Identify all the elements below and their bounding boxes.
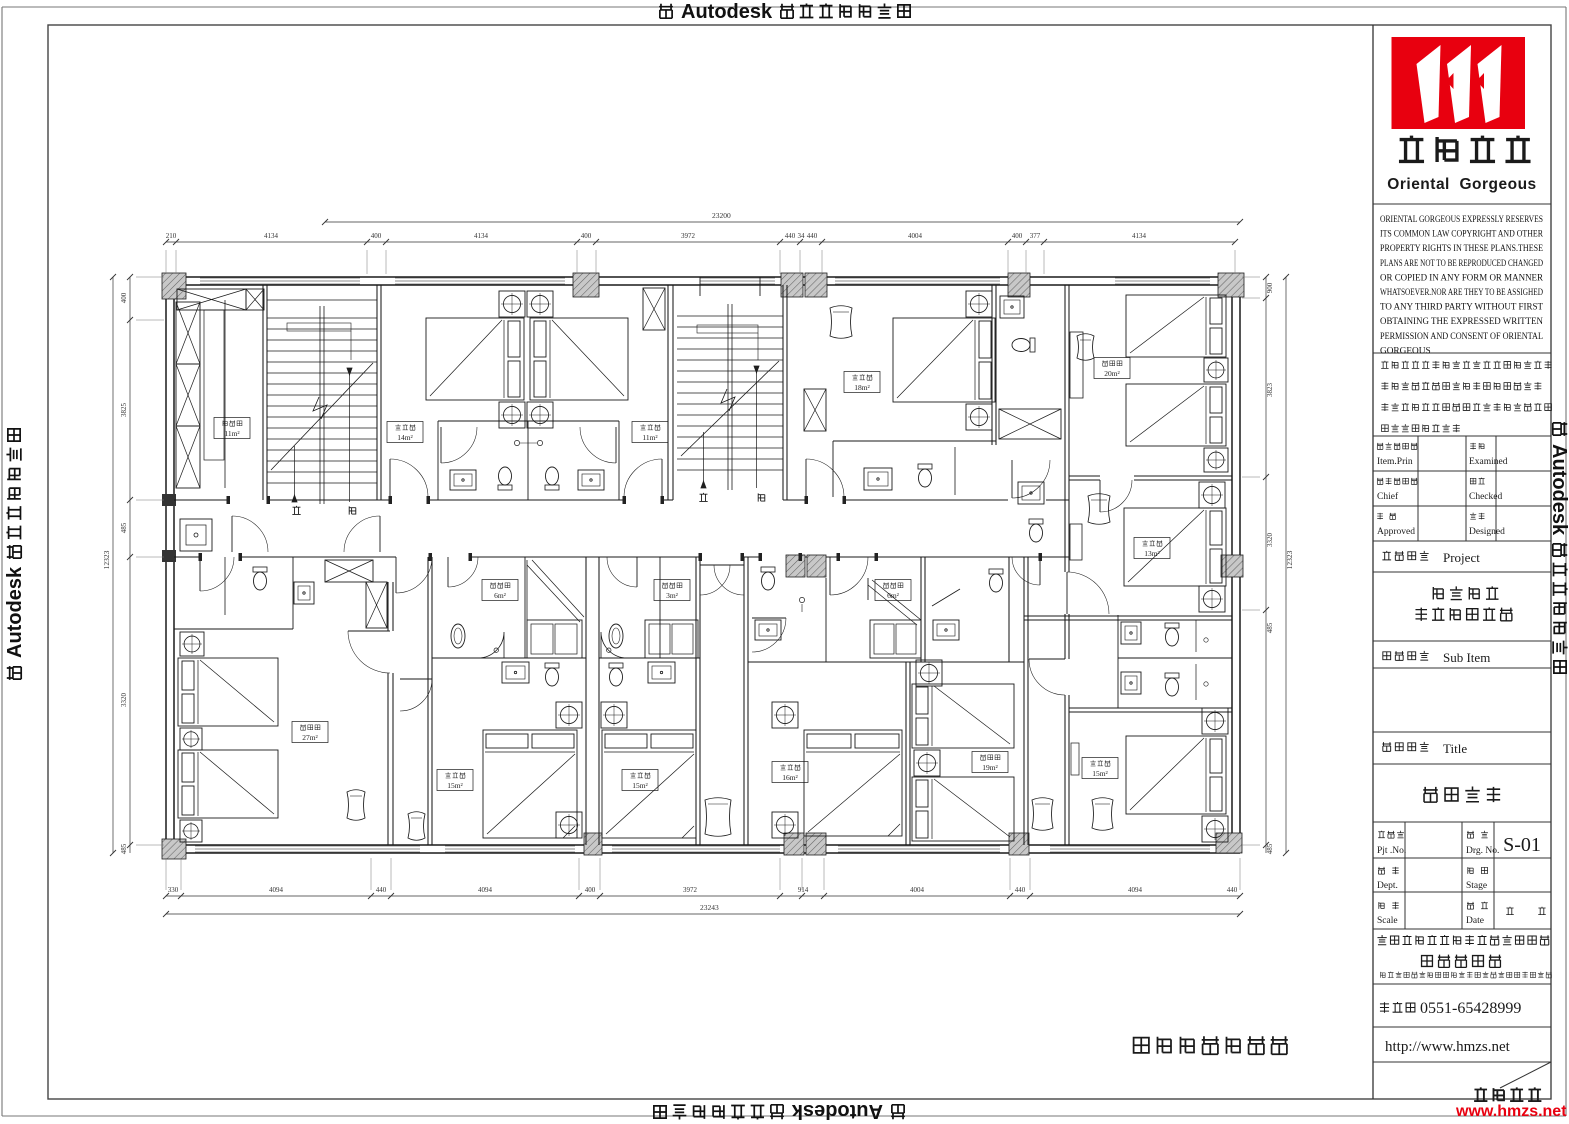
svg-text:14m²: 14m²	[397, 433, 413, 442]
svg-text:485: 485	[120, 843, 128, 854]
svg-text:Oriental Gorgeous: Oriental Gorgeous	[1387, 176, 1536, 193]
svg-text:15m²: 15m²	[447, 781, 463, 790]
svg-text:4134: 4134	[264, 232, 279, 240]
svg-text:440: 440	[376, 886, 387, 894]
svg-text:www.hmzs.net: www.hmzs.net	[1455, 1103, 1567, 1120]
svg-text:http://www.hmzs.net: http://www.hmzs.net	[1385, 1039, 1511, 1055]
svg-text:15m²: 15m²	[1092, 769, 1108, 778]
svg-text:WHATSOEVER.NOR ARE THEY TO BE: WHATSOEVER.NOR ARE THEY TO BE ASSIGHED	[1380, 288, 1543, 298]
svg-text:6m²: 6m²	[494, 591, 507, 600]
svg-text:400: 400	[1012, 232, 1023, 240]
svg-text:3825: 3825	[120, 403, 128, 418]
svg-text:440: 440	[807, 232, 818, 240]
svg-text:PERMISSION AND CONSENT OF ORIE: PERMISSION AND CONSENT OF ORIENTAL	[1380, 332, 1543, 342]
svg-text:3823: 3823	[1266, 383, 1274, 398]
svg-text:ITS COMMON LAW COPYRIGHT AND O: ITS COMMON LAW COPYRIGHT AND OTHER	[1380, 230, 1544, 240]
svg-text:27m²: 27m²	[302, 733, 318, 742]
svg-text:440: 440	[1227, 886, 1238, 894]
svg-text:0551-65428999: 0551-65428999	[1420, 1000, 1521, 1017]
svg-text:3972: 3972	[681, 232, 696, 240]
svg-text:12323: 12323	[102, 550, 111, 569]
svg-text:485: 485	[120, 522, 128, 533]
svg-text:Title: Title	[1443, 741, 1467, 756]
svg-text:11m²: 11m²	[224, 429, 240, 438]
svg-text:TO ANY THIRD PARTY WITHOUT FIR: TO ANY THIRD PARTY WITHOUT FIRST	[1380, 303, 1543, 313]
svg-text:4004: 4004	[910, 886, 925, 894]
svg-text:Autodesk: Autodesk	[681, 1, 773, 23]
svg-text:210: 210	[166, 232, 177, 240]
svg-text:Sub Item: Sub Item	[1443, 650, 1490, 665]
svg-text:Drg. No.: Drg. No.	[1466, 846, 1499, 856]
svg-text:440: 440	[1015, 886, 1026, 894]
svg-text:330: 330	[168, 886, 179, 894]
svg-text:Autodesk: Autodesk	[791, 1100, 883, 1122]
svg-text:Checked: Checked	[1469, 492, 1502, 502]
svg-text:485: 485	[1266, 843, 1274, 854]
svg-text:Item.Prin: Item.Prin	[1377, 457, 1413, 467]
svg-text:Chief: Chief	[1377, 491, 1399, 502]
svg-text:Pjt .No.: Pjt .No.	[1377, 846, 1406, 856]
svg-text:914: 914	[798, 886, 809, 894]
svg-text:6m²: 6m²	[887, 591, 900, 600]
svg-text:4094: 4094	[269, 886, 284, 894]
svg-text:Stage: Stage	[1466, 881, 1487, 891]
svg-text:11m²: 11m²	[642, 433, 658, 442]
svg-text:13m²: 13m²	[1144, 549, 1160, 558]
svg-text:12323: 12323	[1285, 550, 1294, 569]
svg-text:S-01: S-01	[1503, 834, 1541, 856]
svg-text:Autodesk: Autodesk	[4, 566, 26, 658]
svg-text:OR COPIED IN ANY FORM OR MANNE: OR COPIED IN ANY FORM OR MANNER	[1380, 273, 1544, 283]
svg-text:19m²: 19m²	[982, 763, 998, 772]
svg-text:23200: 23200	[712, 211, 731, 220]
svg-text:900: 900	[1266, 282, 1274, 293]
svg-text:Examined: Examined	[1469, 457, 1508, 467]
svg-text:377: 377	[1030, 232, 1041, 240]
svg-text:400: 400	[120, 292, 128, 303]
svg-text:PROPERTY RIGHTS IN THESE PLANS: PROPERTY RIGHTS IN THESE PLANS.THESE	[1380, 244, 1543, 254]
svg-text:3320: 3320	[1266, 533, 1274, 548]
svg-text:20m²: 20m²	[1104, 369, 1120, 378]
svg-text:Project: Project	[1443, 550, 1480, 565]
svg-text:Designed: Designed	[1469, 527, 1505, 537]
svg-text:GORGEOUS: GORGEOUS	[1380, 346, 1431, 356]
svg-text:15m²: 15m²	[632, 781, 648, 790]
svg-text:400: 400	[581, 232, 592, 240]
svg-text:400: 400	[371, 232, 382, 240]
svg-text:440: 440	[785, 232, 796, 240]
svg-text:400: 400	[585, 886, 596, 894]
svg-text:ORIENTAL GORGEOUS EXPRESSLY RE: ORIENTAL GORGEOUS EXPRESSLY RESERVES	[1380, 215, 1543, 225]
svg-text:4004: 4004	[908, 232, 923, 240]
svg-text:18m²: 18m²	[854, 383, 870, 392]
svg-text:Autodesk: Autodesk	[1548, 444, 1569, 536]
svg-text:4094: 4094	[1128, 886, 1143, 894]
svg-text:Dept.: Dept.	[1377, 881, 1398, 891]
svg-text:Approved: Approved	[1377, 527, 1415, 537]
svg-text:OBTAINING THE EXPRESSED WRITTE: OBTAINING THE EXPRESSED WRITTEN	[1380, 317, 1543, 327]
svg-text:4134: 4134	[1132, 232, 1147, 240]
svg-text:3320: 3320	[120, 693, 128, 708]
svg-text:4094: 4094	[478, 886, 493, 894]
svg-text:PLANS ARE NOT TO BE REPRODUCED: PLANS ARE NOT TO BE REPRODUCED CHANGED	[1380, 259, 1543, 269]
svg-text:Date: Date	[1466, 916, 1484, 926]
svg-text:23243: 23243	[700, 903, 719, 912]
svg-text:34: 34	[798, 232, 806, 240]
svg-text:3972: 3972	[683, 886, 698, 894]
svg-text:485: 485	[1266, 622, 1274, 633]
svg-text:4134: 4134	[474, 232, 489, 240]
svg-text:16m²: 16m²	[782, 773, 798, 782]
svg-text:3m²: 3m²	[666, 591, 679, 600]
svg-text:Scale: Scale	[1377, 916, 1398, 926]
